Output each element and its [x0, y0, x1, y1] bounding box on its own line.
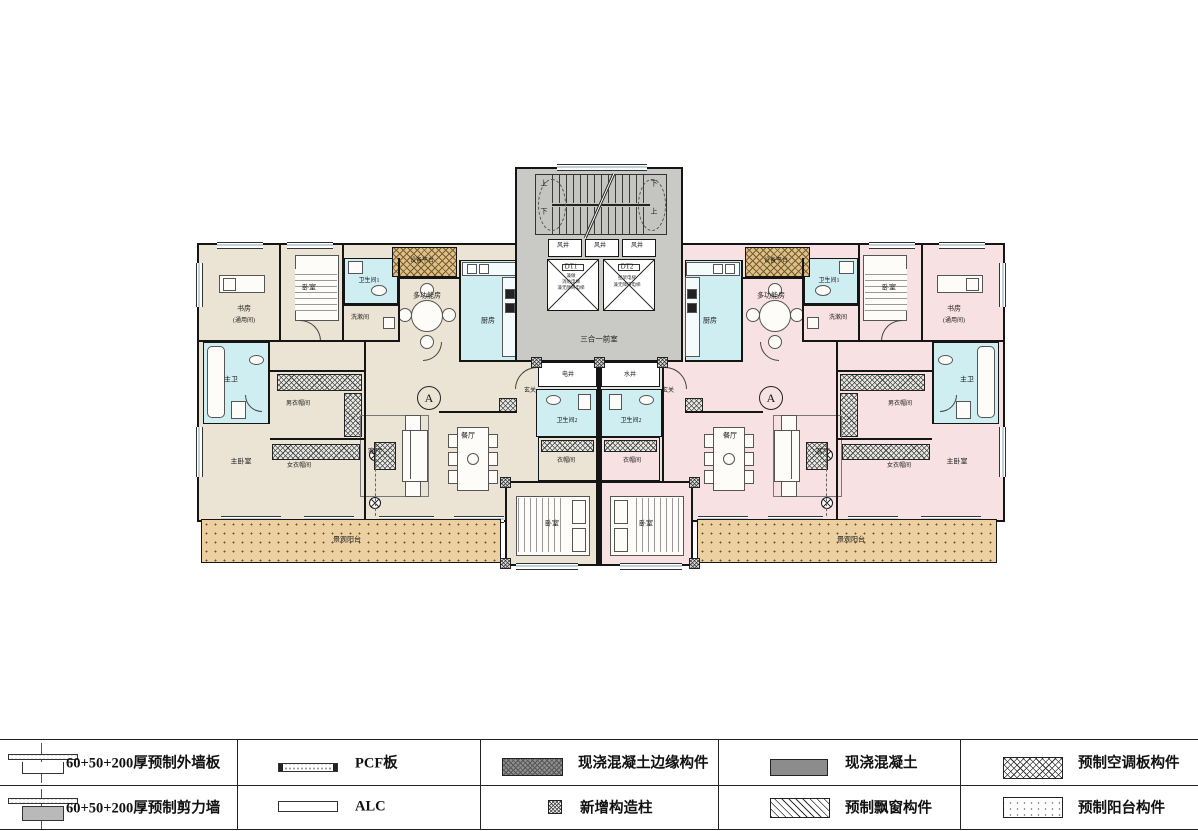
stair-up-label: 上: [651, 209, 658, 216]
room-label-multi: 多功能房: [757, 293, 785, 300]
window: [196, 263, 203, 307]
chair: [704, 434, 714, 448]
legend-label: PCF板: [355, 752, 398, 773]
chair: [704, 470, 714, 484]
legend-label: 预制阳台构件: [1078, 797, 1165, 818]
end-cap: [279, 764, 283, 771]
pillow: [614, 528, 628, 552]
chair: [398, 308, 412, 322]
room-label-foyer: 玄关: [524, 388, 536, 394]
wall: [279, 245, 281, 342]
wall: [459, 360, 517, 362]
room-label-balcony: 景观阳台: [333, 537, 361, 544]
chair: [744, 452, 754, 466]
panel-bracket: [22, 762, 64, 774]
end-cap: [333, 764, 337, 771]
room-label-master-bath: 主卫: [224, 377, 238, 384]
legend-label: 现浇混凝土边缘构件: [578, 752, 709, 773]
sink: [639, 395, 654, 405]
elevator-label-dt2: DT2: [621, 264, 634, 271]
wall: [741, 260, 743, 362]
wall: [743, 277, 804, 279]
wall: [439, 411, 517, 413]
legend-label: 60+50+200厚预制外墙板: [66, 752, 220, 773]
room-label-bath1: 卫生间1: [818, 278, 839, 284]
room-label-closet: 衣帽间: [623, 458, 641, 464]
vent-shaft-label: 风井: [631, 243, 643, 249]
room-label-mens-closet: 男衣帽间: [888, 401, 912, 407]
legend-label: 60+50+200厚预制剪力墙: [66, 797, 220, 818]
wardrobe-cabinet: [840, 374, 925, 391]
side-table: [781, 481, 797, 497]
legend-label: ALC: [355, 799, 386, 816]
wardrobe-cabinet: [840, 393, 858, 437]
wall: [932, 342, 934, 424]
section-marker-a: A: [759, 386, 783, 410]
toilet: [348, 261, 363, 274]
room-label-equipment: 设备平台: [410, 258, 434, 264]
foyer-cabinet: [499, 398, 517, 412]
chair: [488, 452, 498, 466]
toilet: [839, 261, 854, 274]
sink: [546, 395, 561, 405]
round-table: [759, 300, 791, 332]
room-label-foyer: 玄关: [662, 388, 674, 394]
legend-symbol-new-column: [548, 800, 562, 814]
toilet: [578, 394, 591, 410]
room-label-equipment: 设备平台: [764, 258, 788, 264]
vent-shaft-label: 风井: [594, 243, 606, 249]
stove-burner: [505, 289, 515, 299]
chair: [442, 308, 456, 322]
stove-burner: [505, 303, 515, 313]
kitchen-sink: [479, 264, 489, 274]
sink: [815, 285, 831, 296]
sink: [249, 355, 264, 365]
wall: [685, 411, 763, 413]
wardrobe-cabinet: [604, 440, 657, 452]
wall: [838, 370, 932, 372]
section-marker-a: A: [417, 386, 441, 410]
legend-symbol-cast-edge: [502, 758, 563, 776]
wall: [342, 304, 398, 306]
wall: [804, 304, 860, 306]
window: [217, 242, 263, 249]
chair: [488, 470, 498, 484]
side-table: [781, 415, 797, 431]
table-centerpiece: [467, 453, 479, 465]
room-label-bedroom-center: 卧室: [545, 521, 559, 528]
room-label-living: 客厅: [368, 449, 382, 456]
wall: [342, 245, 344, 342]
kitchen-sink: [725, 264, 735, 274]
elevator-label-dt1: DT1: [565, 264, 578, 271]
room-label-dining: 餐厅: [723, 433, 737, 440]
pillow: [614, 500, 628, 524]
kitchen-sink: [467, 264, 477, 274]
room-label-balcony: 景观阳台: [837, 537, 865, 544]
stair-treads-lower: [552, 207, 650, 235]
sink: [371, 285, 387, 296]
room-label-bedroom: 卧室: [302, 285, 316, 292]
room-label-bath2: 卫生间2: [620, 418, 641, 424]
window: [999, 427, 1006, 477]
kitchen-sink: [713, 264, 723, 274]
chair: [744, 470, 754, 484]
pillow: [572, 500, 586, 524]
stair-up-label: 上: [541, 181, 548, 188]
stair-down-label: 下: [541, 209, 548, 216]
sink: [938, 355, 953, 365]
wardrobe-cabinet: [842, 444, 930, 460]
column-mark: [821, 497, 833, 509]
round-table: [411, 300, 443, 332]
vent-shaft-label: 风井: [557, 243, 569, 249]
window: [869, 242, 915, 249]
wall: [802, 258, 804, 342]
wall: [270, 438, 364, 440]
room-label-master-bedroom: 主卧室: [231, 459, 252, 466]
legend-label: 预制飘窗构件: [845, 797, 932, 818]
wall: [268, 342, 270, 424]
room-label-closet: 衣帽间: [557, 458, 575, 464]
legend-symbol-cast-concrete: [770, 759, 828, 776]
unit-right: [662, 243, 1005, 522]
window: [620, 563, 682, 570]
elevator-note: 兼无障碍电梯: [558, 286, 585, 291]
elevator-note: 担架电梯: [618, 276, 636, 281]
room-label-kitchen: 厨房: [703, 318, 717, 325]
stair-flight-area: [535, 174, 667, 235]
room-label-mens-closet: 男衣帽间: [286, 401, 310, 407]
elevator-note: 兼无障碍电梯: [614, 283, 641, 288]
sofa-cushion-line: [410, 431, 411, 479]
structural-column: [689, 477, 700, 488]
side-table: [405, 415, 421, 431]
bathtub: [207, 346, 225, 418]
stair-elevator-core: [515, 167, 683, 362]
room-label-bedroom-center: 卧室: [639, 521, 653, 528]
wall: [270, 370, 364, 372]
room-label-bath2: 卫生间2: [556, 418, 577, 424]
laundry-sink: [383, 317, 395, 329]
wardrobe-cabinet: [277, 374, 362, 391]
wall: [685, 360, 743, 362]
legend-border: [0, 739, 1198, 740]
legend-symbol-bay-window: [770, 798, 830, 818]
wall: [199, 340, 400, 342]
chair: [448, 470, 458, 484]
desk-chair: [223, 278, 236, 291]
room-label-study: 书房: [237, 306, 251, 313]
wall: [858, 245, 860, 342]
room-label-multi: 多功能房: [413, 293, 441, 300]
sofa: [774, 430, 800, 482]
stove-burner: [687, 303, 697, 313]
bathtub: [977, 346, 995, 418]
wall: [836, 342, 838, 520]
legend-divider: [480, 739, 481, 830]
structural-column: [500, 558, 511, 569]
lobby-label: 三合一前室: [580, 335, 618, 343]
electric-shaft-label: 电井: [562, 372, 574, 378]
toilet: [609, 394, 622, 410]
wall: [838, 438, 932, 440]
room-label-study-note: (通用间): [233, 318, 255, 324]
structural-column: [594, 357, 605, 368]
window: [516, 563, 578, 570]
window: [196, 427, 203, 477]
chair: [744, 434, 754, 448]
room-label-dining: 餐厅: [461, 433, 475, 440]
legend-divider: [718, 739, 719, 830]
legend-symbol-alc: [278, 801, 338, 812]
water-shaft-label: 水井: [624, 372, 636, 378]
window: [939, 242, 985, 249]
chair: [448, 452, 458, 466]
room-label-study-note: (通用间): [943, 318, 965, 324]
window: [287, 242, 333, 249]
structural-column: [531, 357, 542, 368]
chair: [448, 434, 458, 448]
wall: [459, 260, 461, 362]
legend-symbol-ac-panel: [1003, 757, 1063, 779]
wall: [398, 277, 459, 279]
chair: [704, 452, 714, 466]
room-label-bath1: 卫生间1: [358, 278, 379, 284]
legend-border: [0, 785, 1198, 786]
window: [999, 263, 1006, 307]
room-label-master-bedroom: 主卧室: [947, 459, 968, 466]
legend-border: [0, 829, 1198, 830]
legend-symbol-balcony: [1003, 797, 1063, 818]
wall: [921, 245, 923, 342]
chair: [488, 434, 498, 448]
elevator-note: 消防电梯: [562, 280, 580, 285]
pillow: [572, 528, 586, 552]
elevator-note: 兼做: [567, 274, 576, 279]
legend-symbol-pcf: [278, 763, 338, 772]
legend-label: 现浇混凝土: [845, 752, 918, 773]
structural-column: [500, 477, 511, 488]
sofa-cushion-line: [791, 431, 792, 479]
room-label-study: 书房: [947, 306, 961, 313]
unit-left: [197, 243, 540, 522]
room-label-laundry: 洗漱间: [351, 315, 369, 321]
wardrobe-cabinet: [272, 444, 360, 460]
room-label-kitchen: 厨房: [481, 318, 495, 325]
room-label-bedroom: 卧室: [882, 285, 896, 292]
room-label-womens-closet: 女衣帽间: [287, 463, 311, 469]
room-label-womens-closet: 女衣帽间: [887, 463, 911, 469]
stair-down-label: 下: [651, 181, 658, 188]
foyer-cabinet: [685, 398, 703, 412]
desk-chair: [966, 278, 979, 291]
structural-column: [657, 357, 668, 368]
table-centerpiece: [723, 453, 735, 465]
toilet: [956, 401, 971, 419]
chair: [746, 308, 760, 322]
legend-label: 预制空调板构件: [1078, 752, 1180, 773]
wall: [364, 342, 366, 520]
legend-table: 60+50+200厚预制外墙板 60+50+200厚预制剪力墙 PCF板 ALC…: [0, 739, 1198, 830]
window: [557, 164, 647, 171]
shear-wall-fill: [22, 806, 64, 821]
stove-burner: [687, 289, 697, 299]
room-label-living: 客厅: [816, 449, 830, 456]
legend-divider: [960, 739, 961, 830]
legend-label: 新增构造柱: [580, 797, 653, 818]
wall: [398, 258, 400, 342]
wall: [802, 340, 1003, 342]
room-label-master-bath: 主卫: [960, 377, 974, 384]
room-label-laundry: 洗漱间: [829, 315, 847, 321]
laundry-sink: [807, 317, 819, 329]
side-table: [405, 481, 421, 497]
floor-plan-sheet: 书房 (通用间) 卧室 卫生间1 洗漱间 多功能房 厨房 主卫 男衣帽间 主卧室…: [0, 0, 1198, 831]
legend-divider: [237, 739, 238, 830]
sofa: [402, 430, 428, 482]
wall: [597, 362, 601, 566]
structural-column: [689, 558, 700, 569]
toilet: [231, 401, 246, 419]
wardrobe-cabinet: [541, 440, 594, 452]
